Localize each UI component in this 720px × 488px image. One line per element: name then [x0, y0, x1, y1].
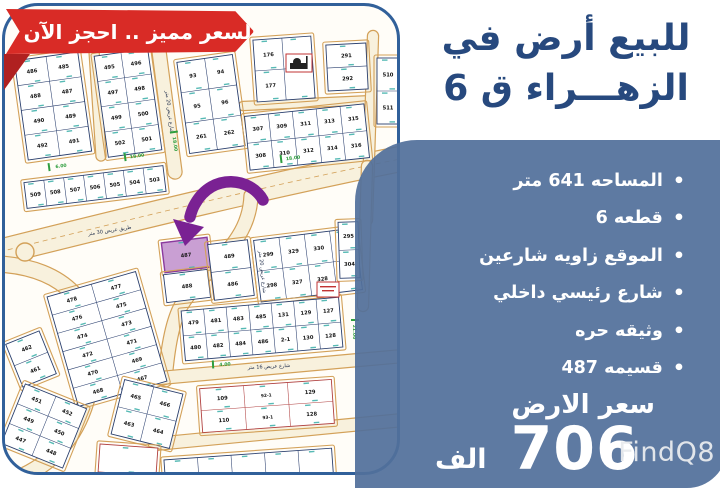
plot-number: 96	[221, 99, 229, 106]
plot-number: 313	[324, 118, 336, 125]
map-block: 291292	[323, 40, 372, 94]
plot-number: 128	[306, 411, 318, 418]
plot-number: 314	[327, 145, 339, 152]
map-block: 489486	[204, 236, 257, 303]
plot-number: 481	[210, 318, 222, 325]
map-block: 307309311313315308310312314316	[241, 101, 373, 174]
plot-number: 483	[233, 316, 245, 323]
plot-number: 311	[300, 121, 312, 128]
price-row: الف 706	[435, 422, 639, 476]
plot-number: 291	[341, 53, 353, 60]
plot-number: 109	[217, 395, 229, 402]
plot-number: 92-1	[261, 392, 272, 399]
plot-number: 486	[257, 339, 269, 346]
plot-number: 484	[235, 341, 247, 348]
cadastral-map: 4864854884874904894924914954964974984995…	[5, 6, 397, 472]
plot-number: 480	[190, 345, 202, 352]
svg-text:4.00: 4.00	[219, 361, 231, 368]
price-unit: الف	[435, 444, 487, 476]
plot-number: 129	[305, 389, 317, 396]
plot-number: 95	[193, 103, 201, 110]
map-block: 510511	[374, 55, 397, 127]
price-ribbon: السعر مميز .. احجز الآن	[6, 9, 254, 54]
plot-number: 479	[188, 320, 200, 327]
bullet-item: وثيقه حره	[479, 312, 685, 350]
bullet-item: قسيمه 487	[479, 350, 685, 388]
plot-number: 110	[218, 417, 230, 424]
plot-number: 315	[348, 116, 360, 123]
bullet-item: المساحه 641 متر	[479, 162, 685, 200]
plot-number: 93-1	[262, 414, 273, 421]
plot-number: 308	[255, 153, 267, 160]
title-line1: للبيع أرض في	[416, 14, 716, 64]
plot-number: 307	[252, 126, 264, 133]
bullet-street: شارع رئيسي داخلي	[493, 283, 663, 303]
svg-text:6.00: 6.00	[55, 163, 67, 171]
plot-number: 511	[383, 105, 394, 111]
plot-number: 176	[263, 52, 275, 59]
map-block: 4794814834851311291274804824844862-11301…	[178, 294, 346, 364]
plot-number: 94	[217, 69, 225, 76]
plot-number: 295	[343, 234, 354, 240]
plot-number: 304	[344, 262, 355, 268]
plot-number: 312	[303, 148, 315, 155]
map-block: 462461	[5, 327, 60, 391]
bullet-block: قطعه 6	[596, 208, 663, 228]
plot-number: 129	[300, 310, 312, 317]
road-measurement: 6.00	[48, 161, 68, 172]
plot-number: 485	[255, 314, 267, 321]
plot-number: 316	[351, 143, 363, 150]
map-card: 4864854884874904894924914954964974984995…	[2, 3, 400, 475]
map-block: 486485488487490489492491	[11, 49, 95, 164]
plot-number: 510	[383, 72, 394, 78]
plot-number: 130	[302, 335, 314, 342]
bullet-item: الموقع زاويه شارعين	[479, 237, 685, 275]
bullet-list: المساحه 641 متر قطعه 6 الموقع زاويه شارع…	[479, 162, 685, 387]
plot-number: 127	[323, 308, 335, 315]
bullet-plot: قسيمه 487	[561, 358, 662, 378]
plot-number: 131	[278, 312, 290, 319]
substation-box	[317, 282, 339, 297]
watermark: FindQ8	[618, 437, 715, 468]
bullet-item: شارع رئيسي داخلي	[479, 275, 685, 313]
mosque-icon	[286, 54, 312, 72]
title-line2: الزهـــراء ق 6	[416, 64, 716, 114]
bullet-item: قطعه 6	[479, 200, 685, 238]
plot-number: 93	[189, 73, 197, 80]
map-block	[161, 445, 338, 472]
plot-number: 292	[342, 76, 354, 83]
map-block: 465466463464	[107, 376, 186, 452]
plot-number: 482	[213, 343, 225, 350]
ribbon-label: السعر مميز .. احجز الآن	[2, 20, 259, 44]
plot-number: 2-1	[281, 337, 291, 344]
bullet-deed: وثيقه حره	[575, 321, 663, 341]
bullet-location: الموقع زاويه شارعين	[479, 246, 663, 266]
bullet-area: المساحه 641 متر	[513, 171, 663, 191]
ad-title: للبيع أرض في الزهـــراء ق 6	[416, 14, 716, 114]
plot-number: 128	[325, 333, 337, 340]
roundabout	[16, 243, 34, 261]
map-block: 93949596261262	[173, 51, 248, 157]
plot-number: 177	[265, 83, 277, 90]
details-panel: المساحه 641 متر قطعه 6 الموقع زاويه شارع…	[355, 140, 720, 488]
plot-number: 309	[276, 123, 288, 130]
